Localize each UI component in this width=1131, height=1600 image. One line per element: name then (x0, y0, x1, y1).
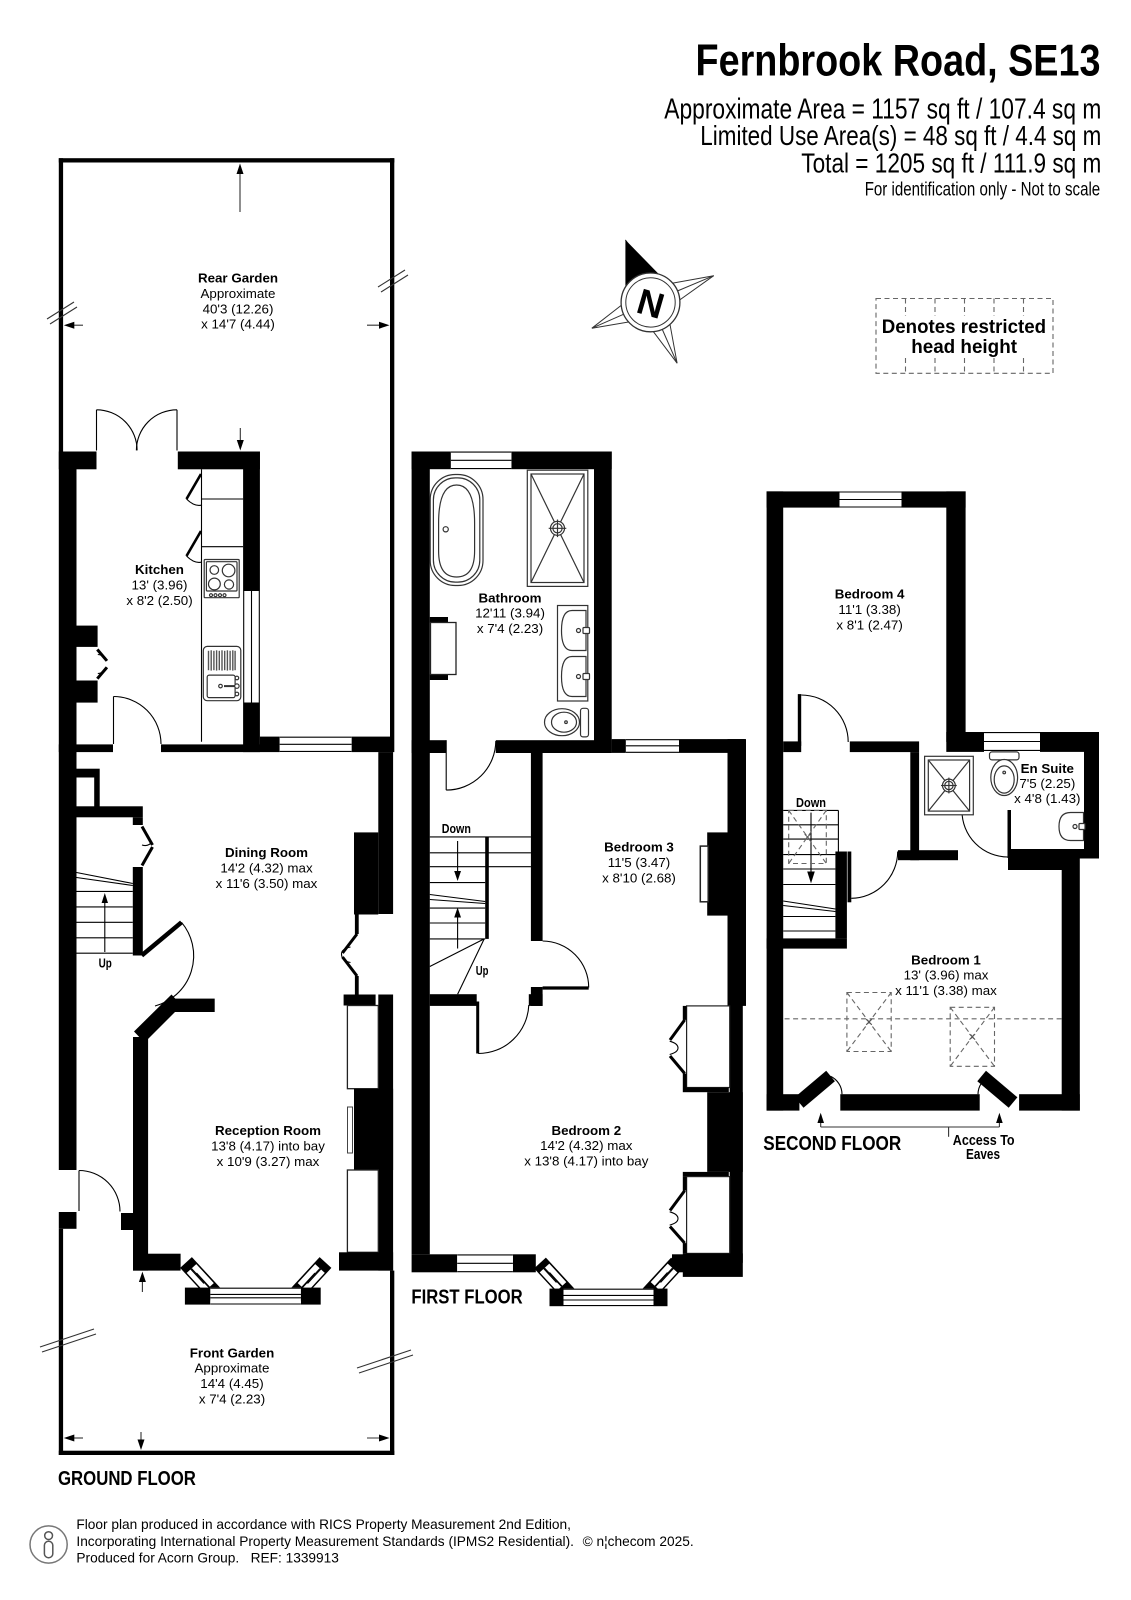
svg-text:Floor plan produced in accorda: Floor plan produced in accordance with R… (76, 1517, 571, 1532)
svg-text:head height: head height (911, 336, 1017, 358)
svg-text:13'8 (4.17) into bay: 13'8 (4.17) into bay (211, 1139, 325, 1154)
svg-text:12'11 (3.94): 12'11 (3.94) (475, 606, 545, 621)
svg-text:14'2 (4.32) max: 14'2 (4.32) max (220, 860, 313, 875)
svg-text:FIRST FLOOR: FIRST FLOOR (411, 1286, 522, 1308)
svg-text:Down: Down (442, 821, 471, 836)
svg-text:13' (3.96): 13' (3.96) (132, 578, 188, 593)
svg-text:x 8'1 (2.47): x 8'1 (2.47) (836, 618, 902, 633)
svg-text:14'4 (4.45): 14'4 (4.45) (200, 1376, 263, 1391)
svg-text:x 14'7 (4.44): x 14'7 (4.44) (201, 317, 275, 332)
svg-text:For identification only - Not: For identification only - Not to scale (865, 179, 1101, 201)
svg-text:Down: Down (796, 795, 826, 810)
svg-text:x 7'4 (2.23): x 7'4 (2.23) (199, 1392, 265, 1407)
svg-text:Approximate: Approximate (201, 286, 276, 301)
svg-text:x 11'6 (3.50) max: x 11'6 (3.50) max (216, 876, 318, 891)
svg-text:Fernbrook Road, SE13: Fernbrook Road, SE13 (696, 36, 1101, 85)
svg-text:x 10'9 (3.27) max: x 10'9 (3.27) max (217, 1154, 320, 1169)
svg-text:Bedroom 2: Bedroom 2 (551, 1123, 621, 1138)
svg-text:Total = 1205 sq ft / 111.9 sq: Total = 1205 sq ft / 111.9 sq m (801, 146, 1101, 178)
svg-text:Rear Garden: Rear Garden (198, 271, 278, 286)
svg-text:© n¦checom 2025.: © n¦checom 2025. (583, 1534, 694, 1549)
svg-text:Up: Up (99, 956, 112, 971)
svg-text:Up: Up (476, 963, 489, 978)
svg-text:14'2 (4.32) max: 14'2 (4.32) max (540, 1138, 633, 1153)
svg-text:Eaves: Eaves (966, 1147, 1000, 1163)
svg-text:Approximate: Approximate (195, 1361, 270, 1376)
svg-text:13' (3.96) max: 13' (3.96) max (904, 968, 989, 983)
svg-text:Bathroom: Bathroom (478, 590, 541, 605)
svg-text:Reception Room: Reception Room (215, 1123, 321, 1138)
svg-text:En Suite: En Suite (1021, 761, 1074, 776)
svg-text:x 11'1 (3.38) max: x 11'1 (3.38) max (895, 983, 997, 998)
svg-text:x 7'4 (2.23): x 7'4 (2.23) (477, 621, 543, 636)
svg-text:Bedroom 3: Bedroom 3 (604, 840, 674, 855)
svg-text:x 8'2 (2.50): x 8'2 (2.50) (126, 593, 192, 608)
svg-text:11'5 (3.47): 11'5 (3.47) (608, 855, 670, 870)
svg-text:SECOND FLOOR: SECOND FLOOR (763, 1133, 901, 1155)
svg-text:x 13'8 (4.17) into bay: x 13'8 (4.17) into bay (524, 1154, 649, 1169)
svg-text:Front Garden: Front Garden (190, 1345, 275, 1360)
svg-text:Bedroom 1: Bedroom 1 (911, 952, 981, 967)
svg-text:Produced for Acorn Group. RE: Produced for Acorn Group. REF: 1339913 (76, 1551, 339, 1566)
svg-text:x 8'10 (2.68): x 8'10 (2.68) (602, 871, 676, 886)
svg-text:40'3 (12.26): 40'3 (12.26) (203, 301, 274, 316)
svg-text:Bedroom 4: Bedroom 4 (835, 587, 905, 602)
svg-text:7'5 (2.25): 7'5 (2.25) (1019, 776, 1075, 791)
svg-text:Incorporating International Pr: Incorporating International Property Mea… (76, 1534, 574, 1549)
svg-text:Dining Room: Dining Room (225, 845, 308, 860)
svg-text:x 4'8 (1.43): x 4'8 (1.43) (1014, 791, 1080, 806)
svg-text:Kitchen: Kitchen (135, 562, 184, 577)
svg-text:Denotes restricted: Denotes restricted (882, 316, 1046, 338)
svg-text:GROUND FLOOR: GROUND FLOOR (58, 1468, 196, 1490)
svg-text:11'1 (3.38): 11'1 (3.38) (838, 602, 900, 617)
